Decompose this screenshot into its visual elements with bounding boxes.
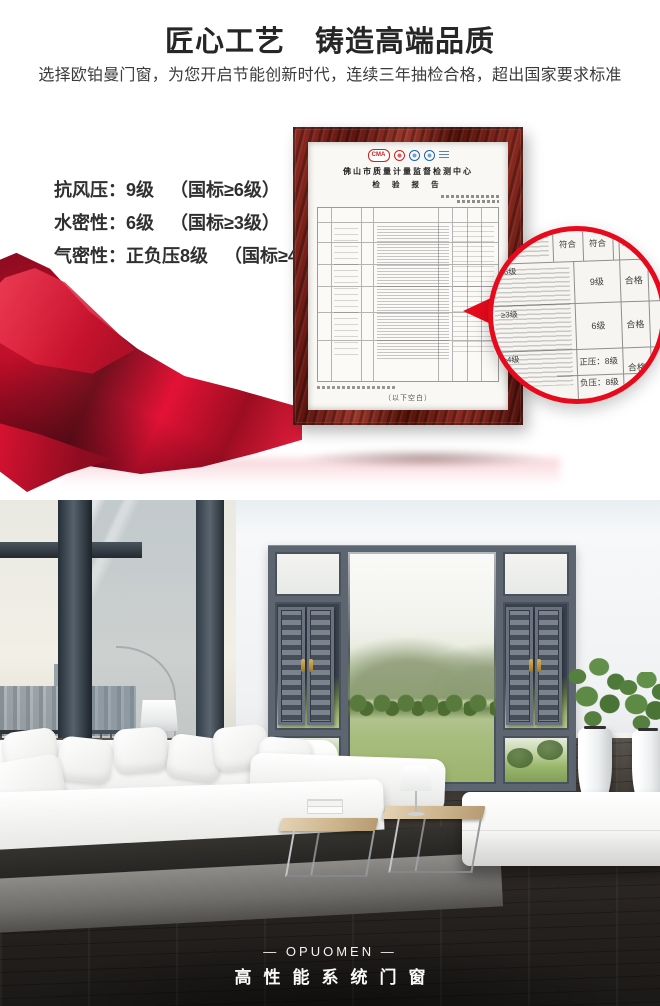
table-item-column-text <box>334 228 357 355</box>
brand-tagline: 高性能系统门窗 <box>0 963 660 988</box>
report-number-bar <box>441 195 499 198</box>
pillow <box>113 726 170 774</box>
table-requirements-text <box>377 226 450 359</box>
transom-pane <box>503 552 569 596</box>
standard-caption: ≥6级 <box>499 266 516 278</box>
table-top <box>279 818 378 831</box>
window-handle <box>529 659 533 672</box>
standard-caption: ≥4级 <box>502 354 519 366</box>
certificate-paper: CMA 佛山市质量计量监督检测中心 检 验 报 告 （以下空白） <box>308 142 508 410</box>
table-legs <box>388 819 482 873</box>
certification-logos: CMA <box>317 149 499 162</box>
window-handle <box>301 659 305 672</box>
plant-foliage <box>618 672 660 734</box>
table-line <box>552 226 554 262</box>
cnas-blue-logo <box>409 150 420 161</box>
pass-cell: 符合 <box>589 237 606 250</box>
result-cell: 6级 <box>591 319 605 332</box>
report-page-bar <box>457 200 499 203</box>
books <box>307 806 343 814</box>
table-lamp-shade <box>400 766 432 791</box>
bush <box>507 748 533 768</box>
pillow <box>56 735 114 784</box>
bush <box>537 740 563 760</box>
spec-value: 6级 <box>126 207 154 240</box>
spec-standard: （国标≥6级） <box>170 174 280 207</box>
bottom-pane-greenery <box>503 736 569 784</box>
center-pane-landscape <box>348 552 496 784</box>
result-negative-cell: 负压：8级 <box>580 376 619 389</box>
result-positive-cell: 正压：8级 <box>579 355 618 368</box>
blue-text-logo <box>439 151 449 160</box>
window-handle <box>537 659 541 672</box>
table-top <box>382 806 485 819</box>
table-line <box>612 226 614 260</box>
pass-cell: 符合 <box>621 236 638 249</box>
transom-pane <box>275 552 341 596</box>
spec-label: 抗风压： <box>54 174 126 207</box>
interior-photo: — OPUOMEN — 高性能系统门窗 <box>0 500 660 1006</box>
promo-page: 匠心工艺 铸造高端品质 选择欧铂曼门窗，为您开启节能创新时代，连续三年抽检合格，… <box>0 0 660 1006</box>
spec-air-tightness: 气密性：正负压8级（国标≥4级） <box>54 240 334 273</box>
table-line <box>646 226 653 404</box>
spec-value: 9级 <box>126 174 154 207</box>
result-cell: 9级 <box>590 275 604 288</box>
verdict-cell: 合格 <box>628 360 646 374</box>
certificate-frame: CMA 佛山市质量计量监督检测中心 检 验 报 告 （以下空白） <box>293 127 523 425</box>
table-lamp-base <box>407 812 425 816</box>
certificate-report-title: 检 验 报 告 <box>317 179 499 190</box>
spec-list: 抗风压：9级（国标≥6级） 水密性：6级（国标≥3级） 气密性：正负压8级（国标… <box>54 174 334 273</box>
table-legs <box>285 831 375 877</box>
frame-shadow <box>300 448 550 468</box>
page-title: 匠心工艺 铸造高端品质 <box>0 18 660 60</box>
coffee-table-right <box>384 806 484 876</box>
table-line <box>573 261 579 404</box>
certificate-footnote-bar <box>317 386 395 389</box>
spec-water-tightness: 水密性：6级（国标≥3级） <box>54 207 334 240</box>
spec-wind-pressure: 抗风压：9级（国标≥6级） <box>54 174 334 207</box>
magnified-table: 符合 符合 符合 ≥6级 9级 合格 ≥3级 6级 合格 ≥4级 正压：8级 负… <box>490 228 660 402</box>
verdict-cell: 合格 <box>626 317 644 331</box>
verdict-cell: 合格 <box>625 273 643 287</box>
page-subtitle: 选择欧铂曼门窗，为您开启节能创新时代，连续三年抽检合格，超出国家要求标准 <box>0 61 660 85</box>
brand-name: — OPUOMEN — <box>0 944 660 959</box>
spec-label: 水密性： <box>54 207 126 240</box>
spec-label: 气密性： <box>54 240 126 273</box>
red-seal-logo <box>394 150 405 161</box>
white-ottoman <box>462 792 660 866</box>
certificate-blank-note: （以下空白） <box>317 393 499 403</box>
cma-logo: CMA <box>368 149 390 162</box>
spec-value: 正负压8级 <box>126 240 208 273</box>
table-line <box>582 226 584 261</box>
spec-standard: （国标≥3级） <box>170 207 280 240</box>
blue-globe-logo <box>424 150 435 161</box>
coffee-table-left <box>281 818 377 878</box>
certificate-authority: 佛山市质量计量监督检测中心 <box>317 166 499 177</box>
window-handle <box>309 659 313 672</box>
standard-caption: ≥3级 <box>501 309 518 321</box>
table-line <box>618 226 625 404</box>
magnifier-lens: 符合 符合 符合 ≥6级 9级 合格 ≥3级 6级 合格 ≥4级 正压：8级 负… <box>488 226 660 404</box>
table-lamp-stem <box>415 791 417 814</box>
blurred-text <box>493 267 573 388</box>
pass-cell: 符合 <box>559 238 576 251</box>
floor-lamp-shade <box>140 700 178 731</box>
test-results-table <box>317 207 499 382</box>
report-number-lines <box>317 195 499 203</box>
table-results-text <box>453 226 494 355</box>
blurred-text <box>492 232 549 260</box>
sky-haze <box>348 552 496 784</box>
